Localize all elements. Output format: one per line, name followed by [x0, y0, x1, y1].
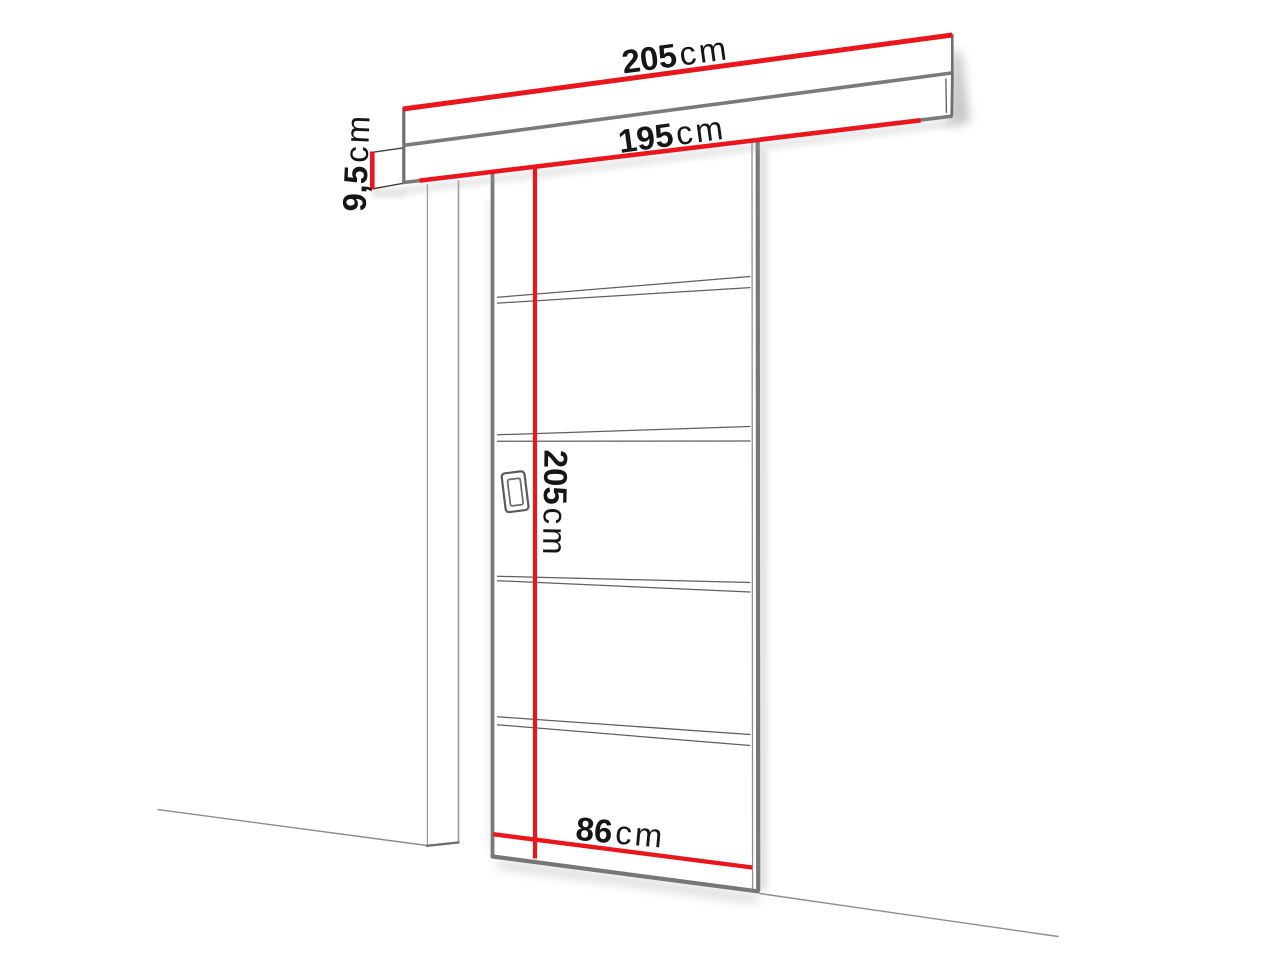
svg-text:205cm: 205cm: [536, 449, 575, 558]
svg-text:9,5cm: 9,5cm: [336, 112, 377, 212]
